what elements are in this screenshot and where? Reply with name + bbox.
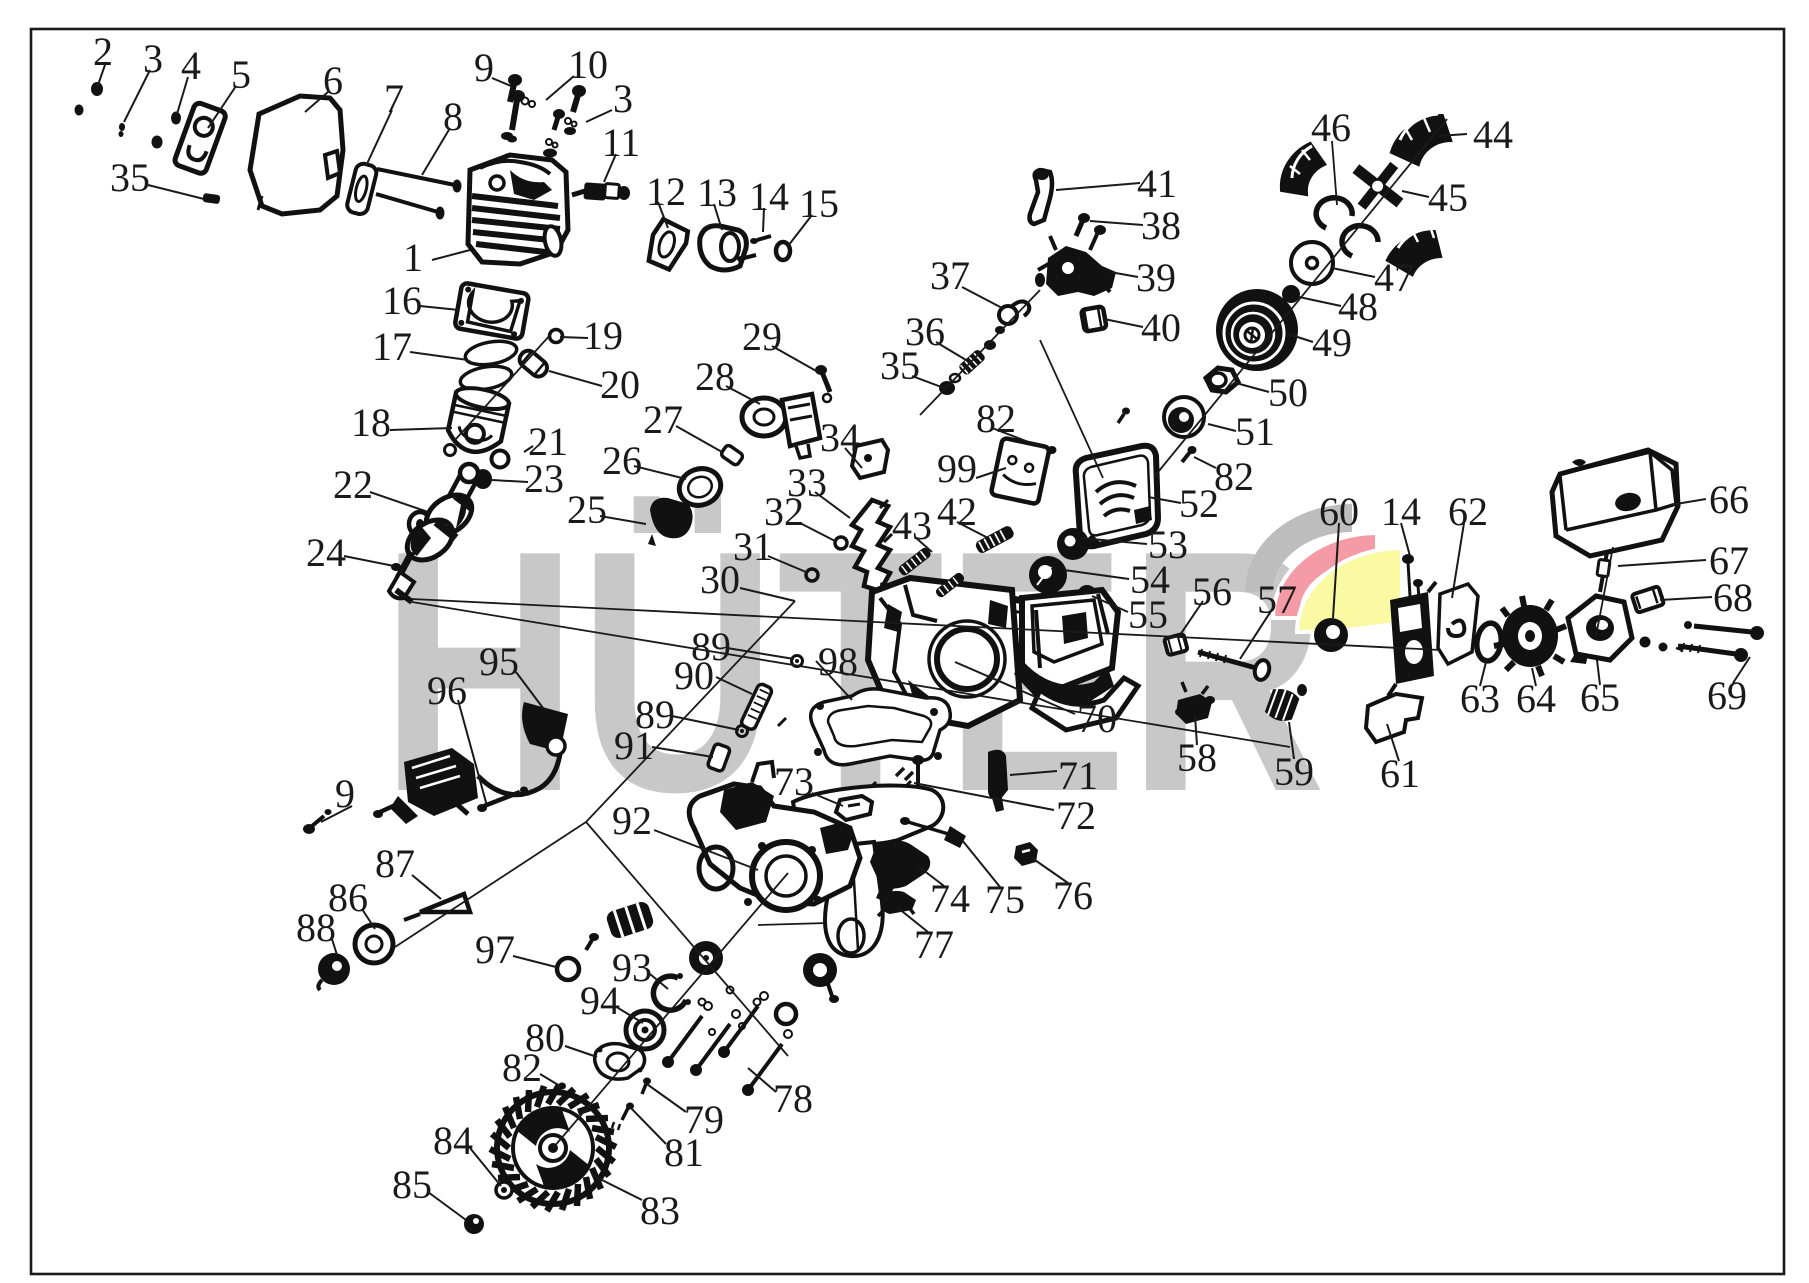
- svg-text:68: 68: [1713, 575, 1753, 620]
- svg-text:4: 4: [181, 43, 201, 88]
- svg-text:76: 76: [1053, 873, 1093, 918]
- svg-text:82: 82: [502, 1045, 542, 1090]
- svg-text:72: 72: [1056, 793, 1096, 838]
- svg-text:12: 12: [646, 169, 686, 214]
- svg-text:5: 5: [231, 52, 251, 97]
- svg-text:71: 71: [1058, 753, 1098, 798]
- svg-text:85: 85: [392, 1162, 432, 1207]
- svg-text:63: 63: [1460, 676, 1500, 721]
- svg-text:15: 15: [799, 181, 839, 226]
- svg-text:64: 64: [1516, 676, 1556, 721]
- svg-text:47: 47: [1374, 255, 1414, 300]
- svg-text:60: 60: [1319, 489, 1359, 534]
- svg-text:92: 92: [612, 798, 652, 843]
- svg-text:19: 19: [583, 313, 623, 358]
- svg-text:1: 1: [403, 235, 423, 280]
- svg-text:6: 6: [323, 58, 343, 103]
- svg-text:81: 81: [664, 1130, 704, 1175]
- svg-text:44: 44: [1473, 112, 1513, 157]
- svg-text:55: 55: [1128, 592, 1168, 637]
- svg-text:38: 38: [1141, 203, 1181, 248]
- svg-text:11: 11: [602, 120, 641, 165]
- svg-text:88: 88: [296, 905, 336, 950]
- svg-text:57: 57: [1257, 577, 1297, 622]
- svg-text:37: 37: [930, 253, 970, 298]
- svg-text:43: 43: [892, 503, 932, 548]
- svg-text:51: 51: [1235, 409, 1275, 454]
- svg-text:14: 14: [1381, 489, 1421, 534]
- svg-text:25: 25: [567, 487, 607, 532]
- svg-text:82: 82: [976, 396, 1016, 441]
- svg-text:20: 20: [600, 362, 640, 407]
- svg-text:2: 2: [93, 29, 113, 74]
- svg-text:28: 28: [695, 354, 735, 399]
- svg-text:78: 78: [773, 1076, 813, 1121]
- svg-text:18: 18: [351, 400, 391, 445]
- svg-text:16: 16: [382, 278, 422, 323]
- svg-text:56: 56: [1192, 569, 1232, 614]
- svg-text:7: 7: [384, 76, 404, 121]
- svg-text:17: 17: [372, 324, 412, 369]
- svg-text:9: 9: [474, 45, 494, 90]
- svg-text:39: 39: [1136, 255, 1176, 300]
- svg-text:10: 10: [568, 42, 608, 87]
- svg-text:9: 9: [335, 771, 355, 816]
- svg-text:42: 42: [937, 489, 977, 534]
- svg-text:52: 52: [1179, 481, 1219, 526]
- svg-text:74: 74: [930, 876, 970, 921]
- svg-text:98: 98: [818, 639, 858, 684]
- svg-text:61: 61: [1380, 751, 1420, 796]
- svg-text:45: 45: [1428, 175, 1468, 220]
- svg-text:35: 35: [110, 155, 150, 200]
- svg-text:22: 22: [333, 462, 373, 507]
- svg-text:96: 96: [427, 668, 467, 713]
- svg-text:75: 75: [985, 877, 1025, 922]
- svg-text:29: 29: [742, 314, 782, 359]
- svg-text:87: 87: [375, 841, 415, 886]
- svg-text:3: 3: [143, 36, 163, 81]
- svg-text:23: 23: [524, 456, 564, 501]
- svg-text:90: 90: [674, 653, 714, 698]
- svg-text:62: 62: [1448, 489, 1488, 534]
- svg-text:3: 3: [613, 76, 633, 121]
- svg-text:59: 59: [1274, 749, 1314, 794]
- svg-text:33: 33: [787, 460, 827, 505]
- svg-text:66: 66: [1709, 477, 1749, 522]
- svg-text:82: 82: [1214, 454, 1254, 499]
- svg-text:84: 84: [433, 1118, 473, 1163]
- svg-text:40: 40: [1141, 305, 1181, 350]
- svg-text:27: 27: [643, 397, 683, 442]
- svg-text:70: 70: [1077, 696, 1117, 741]
- svg-text:94: 94: [580, 978, 620, 1023]
- svg-text:83: 83: [640, 1188, 680, 1233]
- svg-text:35: 35: [880, 343, 920, 388]
- svg-text:65: 65: [1580, 675, 1620, 720]
- svg-text:34: 34: [820, 415, 860, 460]
- svg-text:24: 24: [306, 530, 346, 575]
- svg-text:77: 77: [914, 922, 954, 967]
- svg-text:41: 41: [1137, 161, 1177, 206]
- svg-text:99: 99: [937, 446, 977, 491]
- svg-text:13: 13: [697, 170, 737, 215]
- svg-text:97: 97: [475, 927, 515, 972]
- svg-text:58: 58: [1177, 735, 1217, 780]
- svg-text:46: 46: [1311, 105, 1351, 150]
- svg-text:69: 69: [1707, 673, 1747, 718]
- svg-text:49: 49: [1312, 320, 1352, 365]
- svg-text:91: 91: [614, 723, 654, 768]
- svg-text:95: 95: [479, 639, 519, 684]
- svg-text:8: 8: [443, 94, 463, 139]
- svg-text:73: 73: [774, 759, 814, 804]
- svg-text:14: 14: [749, 174, 789, 219]
- svg-text:26: 26: [602, 438, 642, 483]
